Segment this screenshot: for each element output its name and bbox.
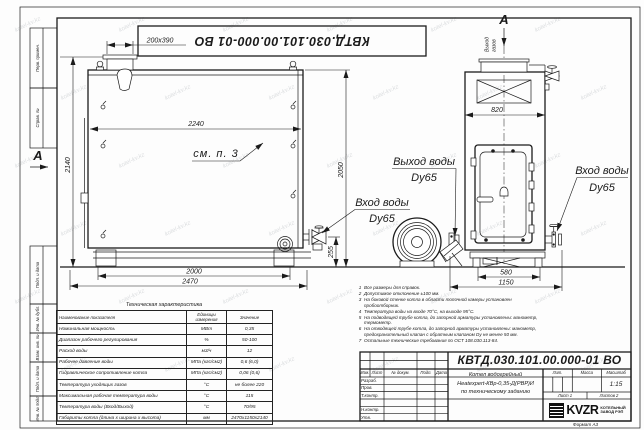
tech-table-row: Габариты котла (длина х ширина х высота)… xyxy=(57,413,273,424)
dim-base: 580 xyxy=(500,270,512,277)
tech-table-row: Температура уходящих газов°Сне более 220 xyxy=(57,379,273,390)
tech-table-body: Номинальная мощностьМВт0,35Диапазон рабо… xyxy=(57,324,273,425)
drawing-sheet: kotel-kv.kzkotel-kv.kzkotel-kv.kzkotel-k… xyxy=(0,0,644,430)
doc-number: КВТД.030.101.00.000-01 ВО xyxy=(449,352,630,369)
furnace-door xyxy=(471,145,534,243)
see-note-text: см. п. 3 xyxy=(193,148,238,160)
boiler-side-view xyxy=(81,55,326,266)
note-item: 7Остальные технические требования по ОСТ… xyxy=(356,338,540,344)
tb-role-razrab: Разраб. xyxy=(361,377,384,384)
tech-table-row: Рабочее давление водыМПа (кгс/см2)0,6 (6… xyxy=(57,357,273,368)
flue-collar xyxy=(107,59,133,70)
border-label: Инв. № подл. xyxy=(35,396,40,422)
tb-role-utv: Утв. xyxy=(361,414,384,421)
tech-table-header-row: Наименование показателя Единицы измерени… xyxy=(57,311,273,324)
tech-header-name: Наименование показателя xyxy=(57,311,187,324)
note-item: 5На подводящей трубе котла, до запорной … xyxy=(356,315,540,327)
tech-table-row: Температура воды (Вход/Выход)°С70/95 xyxy=(57,402,273,413)
border-label: Подп. и дата xyxy=(35,261,40,288)
tb-scale-value: 1:15 xyxy=(601,377,631,392)
door-peephole xyxy=(477,197,493,202)
top-valve xyxy=(529,65,559,90)
tb-role-prov: Пров. xyxy=(361,384,384,391)
note-item: 6На отводящей трубе котла, до запорной а… xyxy=(356,326,540,338)
gost-border-boxes: Перв. примен. Справ. № Подп. и дата Инв.… xyxy=(30,28,57,421)
tb-scale-label: Масштаб xyxy=(602,369,631,377)
tech-table-row: Расход водым3/ч12 xyxy=(57,346,273,357)
inlet-dn: Dy65 xyxy=(369,213,396,225)
tb-col-izm: Изм. xyxy=(360,369,370,377)
tech-header-units: Единицы измерения xyxy=(187,311,227,324)
section-a-marker: А xyxy=(30,148,48,167)
dim-length: 2470 xyxy=(181,279,198,286)
tech-table-row: Максимальная рабочая температура воды°С1… xyxy=(57,391,273,402)
water-inlet-assembly xyxy=(545,224,562,247)
flue-collar-flange xyxy=(103,55,137,59)
dim-inner-width: 2240 xyxy=(187,121,204,128)
tb-role-nkontr: Н.контр. xyxy=(361,406,384,413)
tb-lit-label: Лит. xyxy=(543,369,572,377)
view-a-label: А xyxy=(498,12,508,27)
company-name-line2: ЗАВОД РЭП xyxy=(600,410,625,414)
tb-sheets: Листов 2 xyxy=(587,392,631,399)
water-outlet-assembly xyxy=(440,233,463,266)
tb-col-podp: Подп. xyxy=(417,369,435,377)
tech-table-title: Техническая характеристика xyxy=(56,300,272,310)
tb-col-list: Лист xyxy=(370,369,384,377)
side-inlet-valve xyxy=(303,226,326,250)
tb-sheet: Лист 1 xyxy=(543,392,587,399)
tech-table-row: Диапазон рабочего регулирования%50-100 xyxy=(57,335,273,346)
door-handle xyxy=(500,187,508,196)
tech-header-value: Значение xyxy=(227,311,273,324)
tb-col-dokum: № докум. xyxy=(384,369,417,377)
dim-top-width: 820 xyxy=(491,107,503,114)
tech-table: Техническая характеристика Наименование … xyxy=(56,300,272,425)
product-name-line3: по техническому заданию xyxy=(461,389,530,395)
kvzr-logo-text: KVZR xyxy=(566,403,598,417)
inlet-label: Вход воды xyxy=(355,197,408,209)
border-label: Инв. № дубл. xyxy=(35,306,40,332)
dim-height: 2140 xyxy=(65,157,72,174)
dim-pipe-height: 255 xyxy=(328,246,335,259)
flue-label-1: Выход xyxy=(485,37,491,52)
border-label: Подп. и дата xyxy=(35,365,40,392)
outlet-label: Выход воды xyxy=(393,156,455,168)
side-outlet-flange xyxy=(278,237,293,252)
format-label: Формат А3 xyxy=(540,421,631,429)
blower-fan xyxy=(393,218,446,267)
dim-height-right: 2050 xyxy=(338,162,345,179)
front-base xyxy=(470,252,545,267)
flue-opening xyxy=(477,80,531,103)
border-label: Справ. № xyxy=(35,108,40,127)
top-stamp-text: КВТД.030.101.00.000-01 ВО xyxy=(138,26,426,56)
company-logo-block: KVZR КОТЕЛЬНЫЙ ЗАВОД РЭП xyxy=(544,399,631,421)
flue-label-2: газов xyxy=(492,39,498,52)
dim-feet: 2000 xyxy=(185,269,202,276)
kvzr-logo-icon xyxy=(549,403,564,418)
notes-list: 1Все размеры для справок.2Допустимое отк… xyxy=(356,285,540,344)
product-name-line1: Котел водогрейный xyxy=(469,372,522,378)
tb-col-data: Дата xyxy=(435,369,448,377)
tech-table-row: Гидравлическое сопротивление котлаМПа (к… xyxy=(57,368,273,379)
tech-table-row: Номинальная мощностьМВт0,35 xyxy=(57,324,273,335)
inlet2-label: Вход воды xyxy=(575,165,628,177)
product-name: Котел водогрейный Heatexpert-КВр-0,35-Д(… xyxy=(448,371,543,398)
border-label: Перв. примен. xyxy=(35,44,40,72)
outlet-dn: Dy65 xyxy=(411,172,438,184)
section-a-label: А xyxy=(32,148,42,163)
company-name: КОТЕЛЬНЫЙ ЗАВОД РЭП xyxy=(600,406,625,415)
tb-role-tkontr: Т.контр. xyxy=(361,392,384,399)
front-flue-collar xyxy=(481,62,527,72)
note-item: 3На боковой стенке котла в области топоч… xyxy=(356,297,540,309)
flue-elbow xyxy=(117,69,132,91)
see-note-callout: см. п. 3 xyxy=(192,143,263,161)
product-name-line2: Heatexpert-КВр-0,35-Д(РВР)И xyxy=(457,381,534,387)
inlet2-dn: Dy65 xyxy=(589,182,616,194)
border-label: Взам. инв. № xyxy=(35,334,40,360)
boiler-skids xyxy=(93,250,311,266)
tb-mass-label: Масса xyxy=(572,369,601,377)
